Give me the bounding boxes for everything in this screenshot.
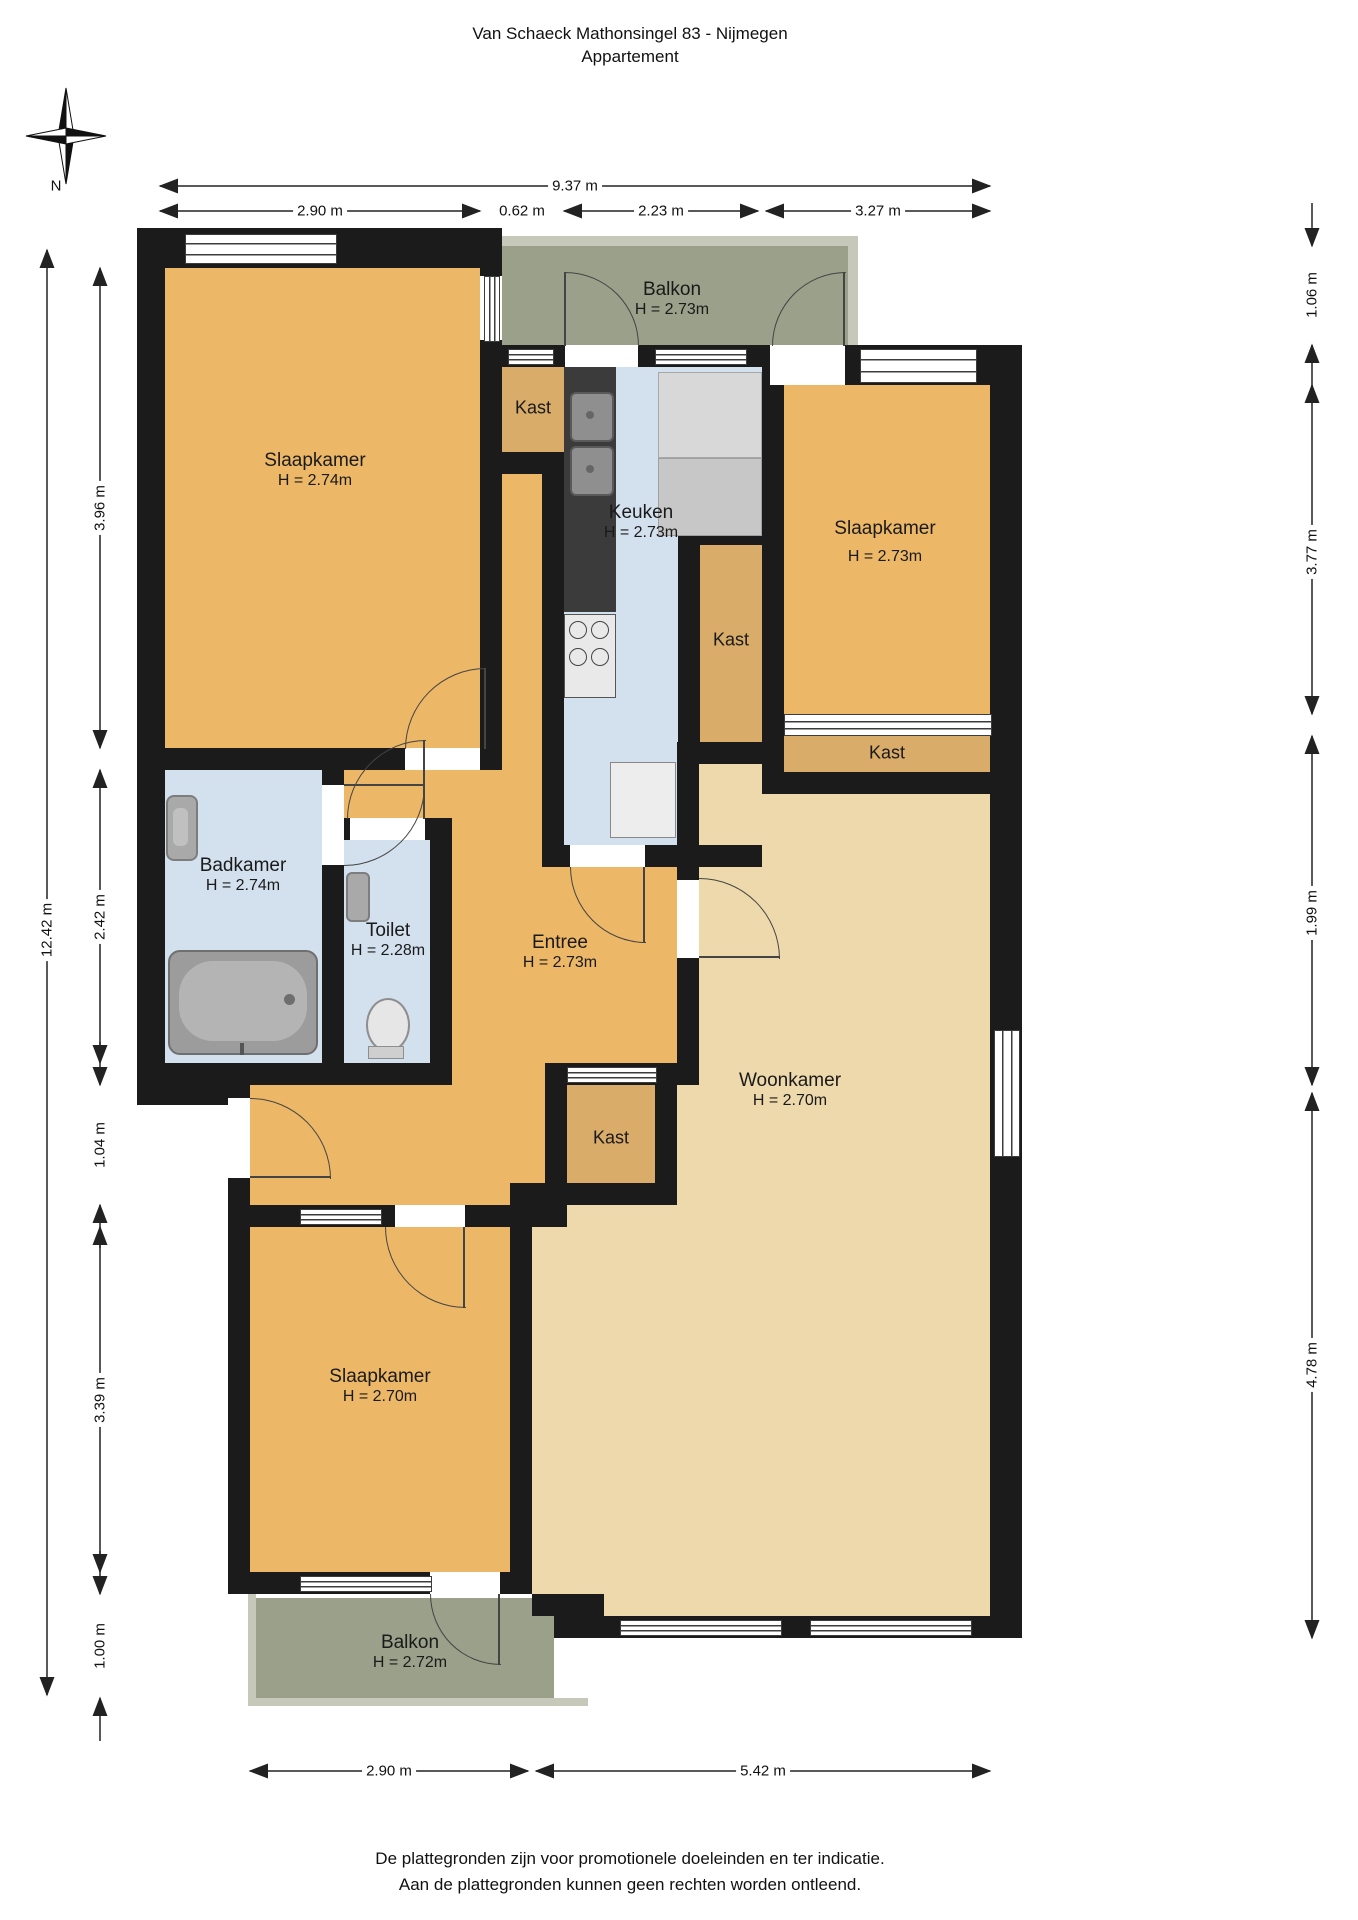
wall [480,228,502,276]
wall [137,1063,452,1085]
wall [137,1085,228,1105]
door-leaf [484,668,486,749]
bathtub-tap-icon [240,1043,244,1055]
door-leaf [643,867,645,943]
label-slaapkamer-beneden: Slaapkamer H = 2.70m [329,1366,430,1406]
label-balkon-beneden: Balkon H = 2.72m [373,1632,447,1672]
window [300,1209,382,1225]
label-kast-midden: Kast [593,1128,629,1149]
label-badkamer: Badkamer H = 2.74m [200,855,287,895]
dim-top-seg-2: 0.62 m [495,203,549,220]
wall [645,845,762,867]
wall [542,474,564,845]
label-slaapkamer-rechts: Slaapkamer H = 2.73m [834,518,935,566]
label-slaapkamer-tl: Slaapkamer H = 2.74m [264,450,365,490]
door-leaf [463,1227,465,1308]
wall [532,1594,604,1616]
dim-bottom-seg-1: 2.90 m [362,1763,416,1780]
label-kast-keuken: Kast [713,630,749,651]
label-kast-top: Kast [515,398,551,419]
dim-top-seg-1: 2.90 m [293,203,347,220]
window [567,1067,657,1083]
door-leaf [843,272,845,346]
sink-drain-icon [586,465,594,473]
wall [762,772,1022,794]
wall [677,958,699,1085]
wall [510,1205,532,1594]
window [508,349,554,365]
compass-north-label: N [47,178,66,195]
window [860,349,977,383]
window [655,349,747,365]
door-leaf [564,272,566,346]
dim-right-seg-2: 3.77 m [1304,525,1321,579]
dim-top-total: 9.37 m [548,178,602,195]
dim-right-seg-1: 1.06 m [1304,268,1321,322]
window [994,1030,1020,1157]
wall [322,770,344,785]
door-leaf [699,956,780,958]
dim-left-seg-3: 1.04 m [92,1118,109,1172]
appliance-block [658,372,762,458]
wall [762,385,784,714]
dim-right-seg-3: 1.99 m [1304,886,1321,940]
burner-icon [591,621,609,639]
dim-left-seg-4: 3.39 m [92,1373,109,1427]
wall [678,545,700,742]
wall [762,345,770,385]
wall [228,1178,250,1594]
wall [137,748,405,770]
dim-top-seg-3: 2.23 m [634,203,688,220]
label-woonkamer: Woonkamer H = 2.70m [739,1070,841,1110]
wall [137,228,165,1085]
dim-left-seg-5: 1.00 m [92,1619,109,1673]
wall [500,1572,532,1594]
window [810,1620,972,1636]
burner-icon [569,621,587,639]
wall [480,452,564,474]
sink-drain-icon [586,411,594,419]
window [484,276,500,342]
wall [762,714,784,772]
burner-icon [569,648,587,666]
door-leaf [423,740,425,819]
window [185,234,337,264]
wall [485,748,502,770]
closet-sliding-door [784,714,992,736]
compass-icon [26,88,106,184]
toilet-sink-icon [346,872,370,922]
wall [228,1085,250,1098]
bathroom-sink-basin [173,808,188,846]
label-toilet: Toilet H = 2.28m [351,920,425,960]
label-entree: Entree H = 2.73m [523,932,597,972]
toilet-bowl-icon [366,998,410,1052]
burner-icon [591,648,609,666]
dim-left-seg-2: 2.42 m [92,890,109,944]
label-balkon-top: Balkon H = 2.73m [635,279,709,319]
label-kast-rechts: Kast [869,743,905,764]
door-leaf [250,1176,331,1178]
door-leaf [498,1594,500,1665]
wall [990,345,1022,1638]
dim-right-seg-4: 4.78 m [1304,1338,1321,1392]
label-keuken: Keuken H = 2.73m [604,502,678,542]
toilet-tank-icon [368,1046,404,1059]
wall [542,845,570,867]
dim-bottom-seg-2: 5.42 m [736,1763,790,1780]
bathtub-drain-icon [284,994,295,1005]
dim-left-total: 12.42 m [39,899,56,961]
dim-left-seg-1: 3.96 m [92,481,109,535]
window [300,1576,432,1592]
window [620,1620,782,1636]
dim-top-seg-4: 3.27 m [851,203,905,220]
floorplan-page: Van Schaeck Mathonsingel 83 - Nijmegen A… [0,0,1358,1920]
wall [677,764,699,880]
dishwasher-icon [610,762,676,838]
wall [677,742,762,764]
wall [322,865,344,1085]
wall [430,818,452,1063]
